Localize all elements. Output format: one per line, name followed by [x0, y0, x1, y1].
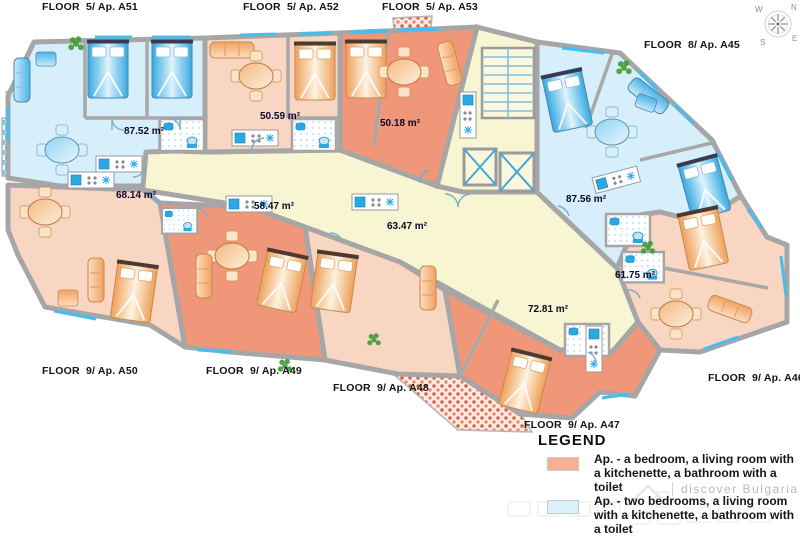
- elevators: [464, 149, 534, 191]
- compass-north-label: N: [791, 3, 797, 12]
- legend-title: LEGEND: [538, 432, 607, 449]
- area-label-a46: 61.75 m²: [615, 270, 655, 281]
- area-label-a49: 58.47 m²: [254, 201, 294, 212]
- area-label-a50: 68.14 m²: [116, 190, 156, 201]
- floor-label-a51: FLOOR 5/ Ap. A51: [42, 1, 138, 13]
- area-label-a53: 50.18 m²: [380, 118, 420, 129]
- floor-label-a53: FLOOR 5/ Ap. A53: [382, 1, 478, 13]
- watermark-text: discover Bulgaria: [672, 482, 799, 496]
- compass-south-label: S: [760, 38, 765, 47]
- staircase: [482, 48, 534, 118]
- area-label-a45: 87.56 m²: [566, 194, 606, 205]
- floor-label-a50: FLOOR 9/ Ap. A50: [42, 365, 138, 377]
- legend-swatch-one-bedroom: [547, 457, 579, 471]
- area-label-a51: 87.52 m²: [124, 126, 164, 137]
- legend-swatch-two-bedroom: [547, 500, 579, 514]
- area-label-a47: 72.81 m²: [528, 304, 568, 315]
- floor-label-a52: FLOOR 5/ Ap. A52: [243, 1, 339, 13]
- floor-label-a48: FLOOR 9/ Ap. A48: [333, 382, 429, 394]
- area-label-a52: 50.59 m²: [260, 111, 300, 122]
- compass-icon: [765, 11, 791, 37]
- compass-west-label: W: [755, 5, 763, 14]
- floor-label-a45: FLOOR 8/ Ap. A45: [644, 39, 740, 51]
- floor-label-a46: FLOOR 9/ Ap. A46: [708, 372, 800, 384]
- legend-label-two-bedroom: Ap. - two bedrooms, a living room with a…: [594, 494, 800, 536]
- floor-label-a49: FLOOR 9/ Ap. A49: [206, 365, 302, 377]
- floor-plan-page: FLOOR 5/ Ap. A51 FLOOR 5/ Ap. A52 FLOOR …: [0, 0, 800, 537]
- area-label-a48: 63.47 m²: [387, 221, 427, 232]
- compass-east-label: E: [792, 34, 797, 43]
- floor-label-a47: FLOOR 9/ Ap. A47: [524, 419, 620, 431]
